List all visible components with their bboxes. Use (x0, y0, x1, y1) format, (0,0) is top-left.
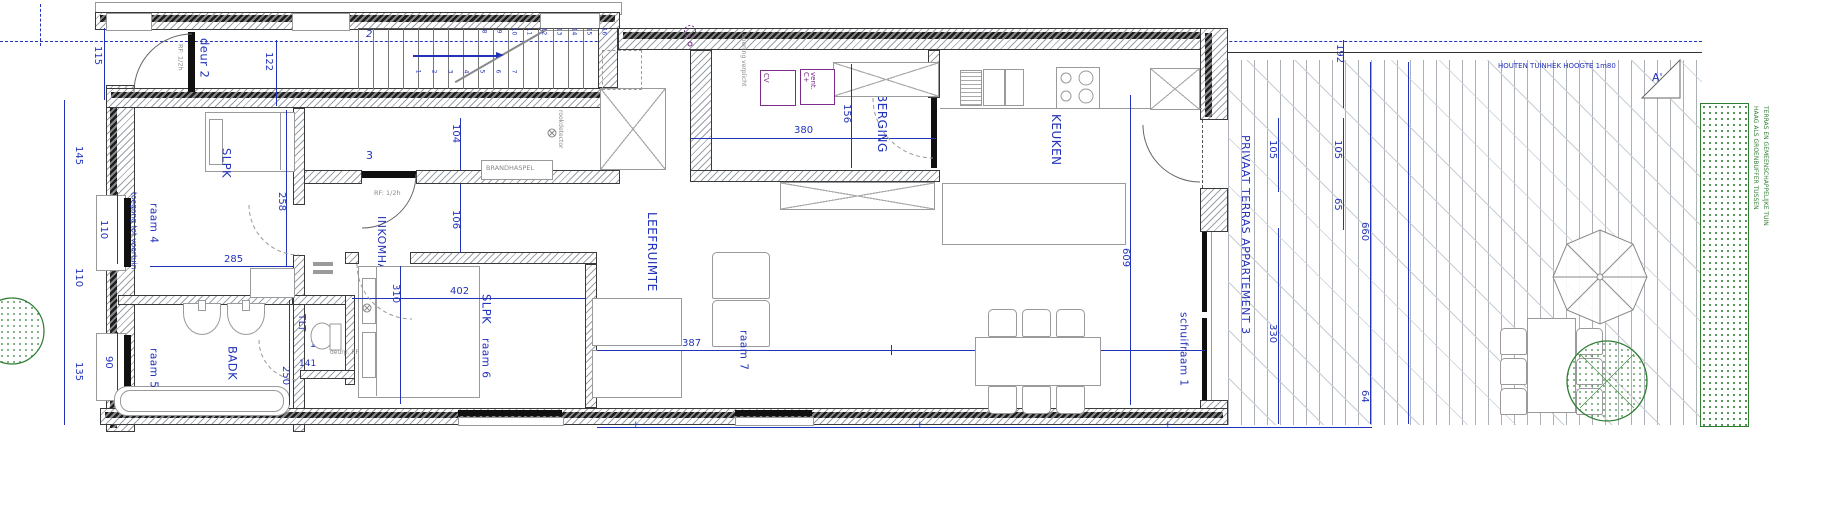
datum-line-left (40, 4, 41, 46)
hedge-note-line2: TERRAS EN GEMEENSCHAPPELIJKE TUIN (1762, 106, 1768, 226)
kitchen-sink-basin-2 (1005, 69, 1024, 106)
voordeur-swing-arc (362, 174, 416, 228)
slpk1-door-swing-arc (249, 205, 299, 255)
corridor-south-wall-core (111, 92, 615, 98)
dim-250: 250 (280, 366, 290, 385)
washbasin-1-tap (198, 300, 206, 311)
dashed-opening-zone (602, 50, 642, 90)
stair-numbers-bottom: 1234567 (414, 68, 518, 75)
dim-line-90 (117, 332, 118, 394)
tlt-bottom-wall (300, 370, 355, 379)
dining-chair-6 (1056, 386, 1085, 414)
room-label-badk: BADK (226, 346, 238, 380)
schuifraam1-outer-line (1211, 232, 1212, 400)
terrace-chair-r1 (1576, 328, 1603, 355)
bed-slpk2-pillow-2 (362, 332, 376, 378)
hedge-note-line1: HAAG ALS GROENBUFFER TUSSEN (1752, 106, 1758, 210)
dim-line-65 (1343, 192, 1344, 230)
dim-line-122 (276, 40, 277, 106)
bottom-dim-line (597, 427, 1372, 428)
closet-under-stairs (600, 88, 666, 170)
facade-window-1 (106, 13, 152, 31)
rf-label-voordeur: RF: 1/2h (374, 190, 401, 197)
stair-flight-number: 2 (366, 30, 372, 40)
vent-unit: vent. C+ (800, 69, 835, 105)
dim-120: 120 (310, 341, 327, 350)
raam6-sill (458, 417, 564, 426)
slpk2-top-wall-left (345, 252, 359, 264)
threshold-mat-2 (313, 270, 333, 274)
terrace-chair-l2 (1500, 358, 1527, 385)
berging-west-wall (690, 50, 712, 182)
raam5-label: raam 5 (148, 348, 159, 388)
dim-105b: 105 (1332, 140, 1342, 159)
dim-110b: 110 (98, 220, 108, 239)
dim-65: 65 (1332, 198, 1342, 211)
dim-line-402 (352, 298, 585, 299)
facade-window-2 (292, 13, 350, 31)
dim-145: 145 (73, 146, 83, 165)
dim-line-terrace-right (1408, 62, 1409, 424)
terrace-table (1527, 318, 1576, 413)
dim-402: 402 (450, 287, 469, 297)
rookdetector1-label: rookdetector (557, 110, 563, 148)
washbasin-2-tap (242, 300, 250, 311)
raam7-sill (735, 417, 814, 426)
kitchen-tall-cabinet (1150, 68, 1200, 110)
dining-chair-5 (1022, 386, 1051, 414)
room-label-berging: BERGING (876, 94, 888, 153)
dim-tick-387-400 (891, 345, 892, 355)
dining-chair-1 (988, 309, 1017, 337)
brandhaspel-label: BRANDHASPEL (486, 165, 534, 172)
dim-64: 64 (1359, 390, 1369, 403)
terrace-chair-r3 (1576, 388, 1603, 415)
voordeur-number: 3 (366, 150, 373, 161)
dining-chair-3 (1056, 309, 1085, 337)
dim-line-330 (1278, 228, 1279, 424)
dim-609: 609 (1120, 248, 1130, 267)
deur3-swing-arc (1143, 125, 1200, 182)
deur3-leaf-dashed (1202, 120, 1203, 188)
cv-label: CV (761, 71, 770, 85)
rf-label-deur2: RF: 1/2h (177, 44, 184, 71)
cv-unit: CV (760, 70, 796, 106)
bush-icon (0, 298, 44, 364)
threshold-mat-1 (313, 262, 333, 266)
dim-line-258 (286, 110, 287, 266)
dim-192: 192 (1334, 44, 1344, 63)
dim-line-105b (1343, 118, 1344, 192)
room-label-terras: PRIVAAT TERRAS APPARTEMENT 3 (1240, 135, 1251, 335)
desk-slpk1 (250, 268, 295, 298)
dim-90: 90 (103, 356, 113, 369)
dim-330: 330 (1267, 324, 1277, 343)
sofa-module-1 (592, 298, 682, 346)
cooktop (1056, 67, 1100, 109)
raam6-glass (458, 410, 562, 416)
rookdetector1-icon (548, 129, 556, 137)
dim-line-660 (1370, 62, 1371, 424)
bed-slpk2-pillow-1 (362, 278, 376, 324)
dim-135: 135 (73, 362, 83, 381)
terrace-decking (1228, 60, 1702, 425)
stair-direction-arrow (413, 55, 498, 57)
dim-660: 660 (1359, 222, 1369, 241)
floor-plan-canvas: 1234567 8910111213141516 2 RF: 1/2h deur… (0, 0, 1836, 510)
room-label-leefruimte: LEEFRUIMTE (646, 212, 658, 292)
lounge-chair-1 (712, 252, 770, 299)
terrace-chair-l1 (1500, 328, 1527, 355)
raam6-label: raam 6 (480, 338, 491, 378)
east-wall-pier (1200, 188, 1228, 232)
room-label-tlt: TLT (296, 314, 306, 332)
section-marker-label: A' (1652, 72, 1663, 83)
toilet-tank (330, 324, 341, 350)
berging-south-wall (690, 170, 940, 182)
dim-line-250 (289, 300, 290, 405)
dim-110a: 110 (73, 268, 83, 287)
dining-table (975, 337, 1101, 386)
stair-arrowhead (496, 52, 504, 58)
dim-156: 156 (841, 104, 851, 123)
voordeur-leaf (362, 171, 416, 178)
slpk2-top-wall-right (410, 252, 597, 264)
room-label-keuken: KEUKEN (1050, 114, 1062, 166)
schuifraam1-label: schuifraam 1 (1178, 312, 1189, 387)
terrace-chair-l3 (1500, 388, 1527, 415)
bottom-tick-1: + (632, 421, 640, 430)
dim-285: 285 (224, 255, 243, 265)
verplicht-note: opening verplicht (740, 34, 746, 86)
tuinhek-note: HOUTEN TUINHEK HOOGTE 1m80 (1498, 63, 1616, 70)
dim-258: 258 (276, 192, 286, 211)
bathtub-inner (120, 390, 284, 412)
deur2-label: deur 2 (198, 38, 210, 78)
dim-line-105a (1278, 118, 1279, 192)
staircase-treads (358, 28, 598, 89)
bed-slpk2-headboard (376, 266, 377, 396)
dim-310: 310 (390, 284, 400, 303)
terrace-chair-r2 (1576, 358, 1603, 385)
schuifraam1-glass-upper (1202, 232, 1207, 312)
north-wall-right-core (623, 32, 1223, 39)
bottom-tick-2: + (916, 421, 924, 430)
dim-387: 387 (682, 339, 701, 349)
dining-chair-2 (1022, 309, 1051, 337)
corridor-south-wall (106, 88, 620, 108)
vent-label: vent. C+ (801, 70, 817, 104)
dim-line-110b (117, 192, 118, 264)
dim-122: 122 (263, 52, 273, 71)
room-label-slpk1: SLPK (220, 148, 232, 178)
dim-115: 115 (92, 46, 102, 65)
facade-wall-core (100, 15, 615, 22)
dim-line-380 (690, 138, 936, 139)
kitchen-sink-drainer (960, 70, 982, 106)
east-wall-upper-core (1205, 33, 1212, 117)
dim-105a: 105 (1267, 140, 1277, 159)
dim-line-387-400 (597, 350, 1205, 351)
dim-141: 141 (299, 360, 316, 369)
dining-chair-4 (988, 386, 1017, 414)
deur2-leaf (188, 32, 195, 92)
bed-slpk1-headboard (280, 112, 281, 170)
toegang-note: toegang tot voortuin (130, 192, 138, 269)
hedge-strip (1700, 103, 1749, 427)
schuifraam1-glass-lower (1202, 318, 1207, 400)
kitchen-island (942, 183, 1126, 245)
closet-berging (833, 62, 939, 97)
dim-380: 380 (794, 126, 813, 136)
sofa-module-2 (592, 350, 682, 398)
berging-door-leaf (931, 98, 937, 168)
kitchen-sink-basin-1 (983, 69, 1005, 106)
raam7-glass (735, 410, 812, 416)
dim-106: 106 (450, 210, 460, 229)
stair-numbers-top: 8910111213141516 (480, 28, 608, 35)
dim-line-left-chain (64, 100, 65, 425)
dim-line-115 (104, 28, 105, 100)
closet-leefruimte (780, 182, 935, 210)
bottom-tick-3: + (1164, 421, 1172, 430)
raam4-label: raam 4 (148, 203, 159, 243)
dim-line-285 (150, 266, 293, 267)
dim-104: 104 (450, 124, 460, 143)
